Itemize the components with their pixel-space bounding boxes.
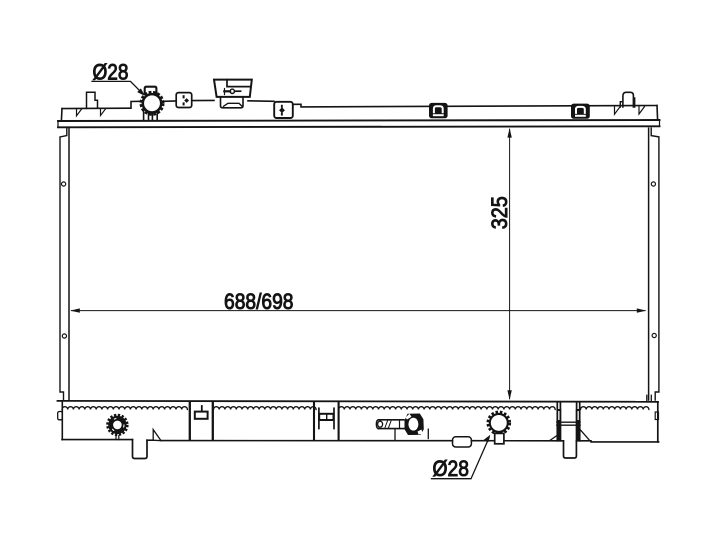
svg-text:Ø28: Ø28 (433, 456, 470, 481)
svg-text:Ø28: Ø28 (93, 59, 129, 84)
svg-text:325: 325 (487, 196, 512, 229)
svg-text:688/698: 688/698 (224, 289, 294, 314)
